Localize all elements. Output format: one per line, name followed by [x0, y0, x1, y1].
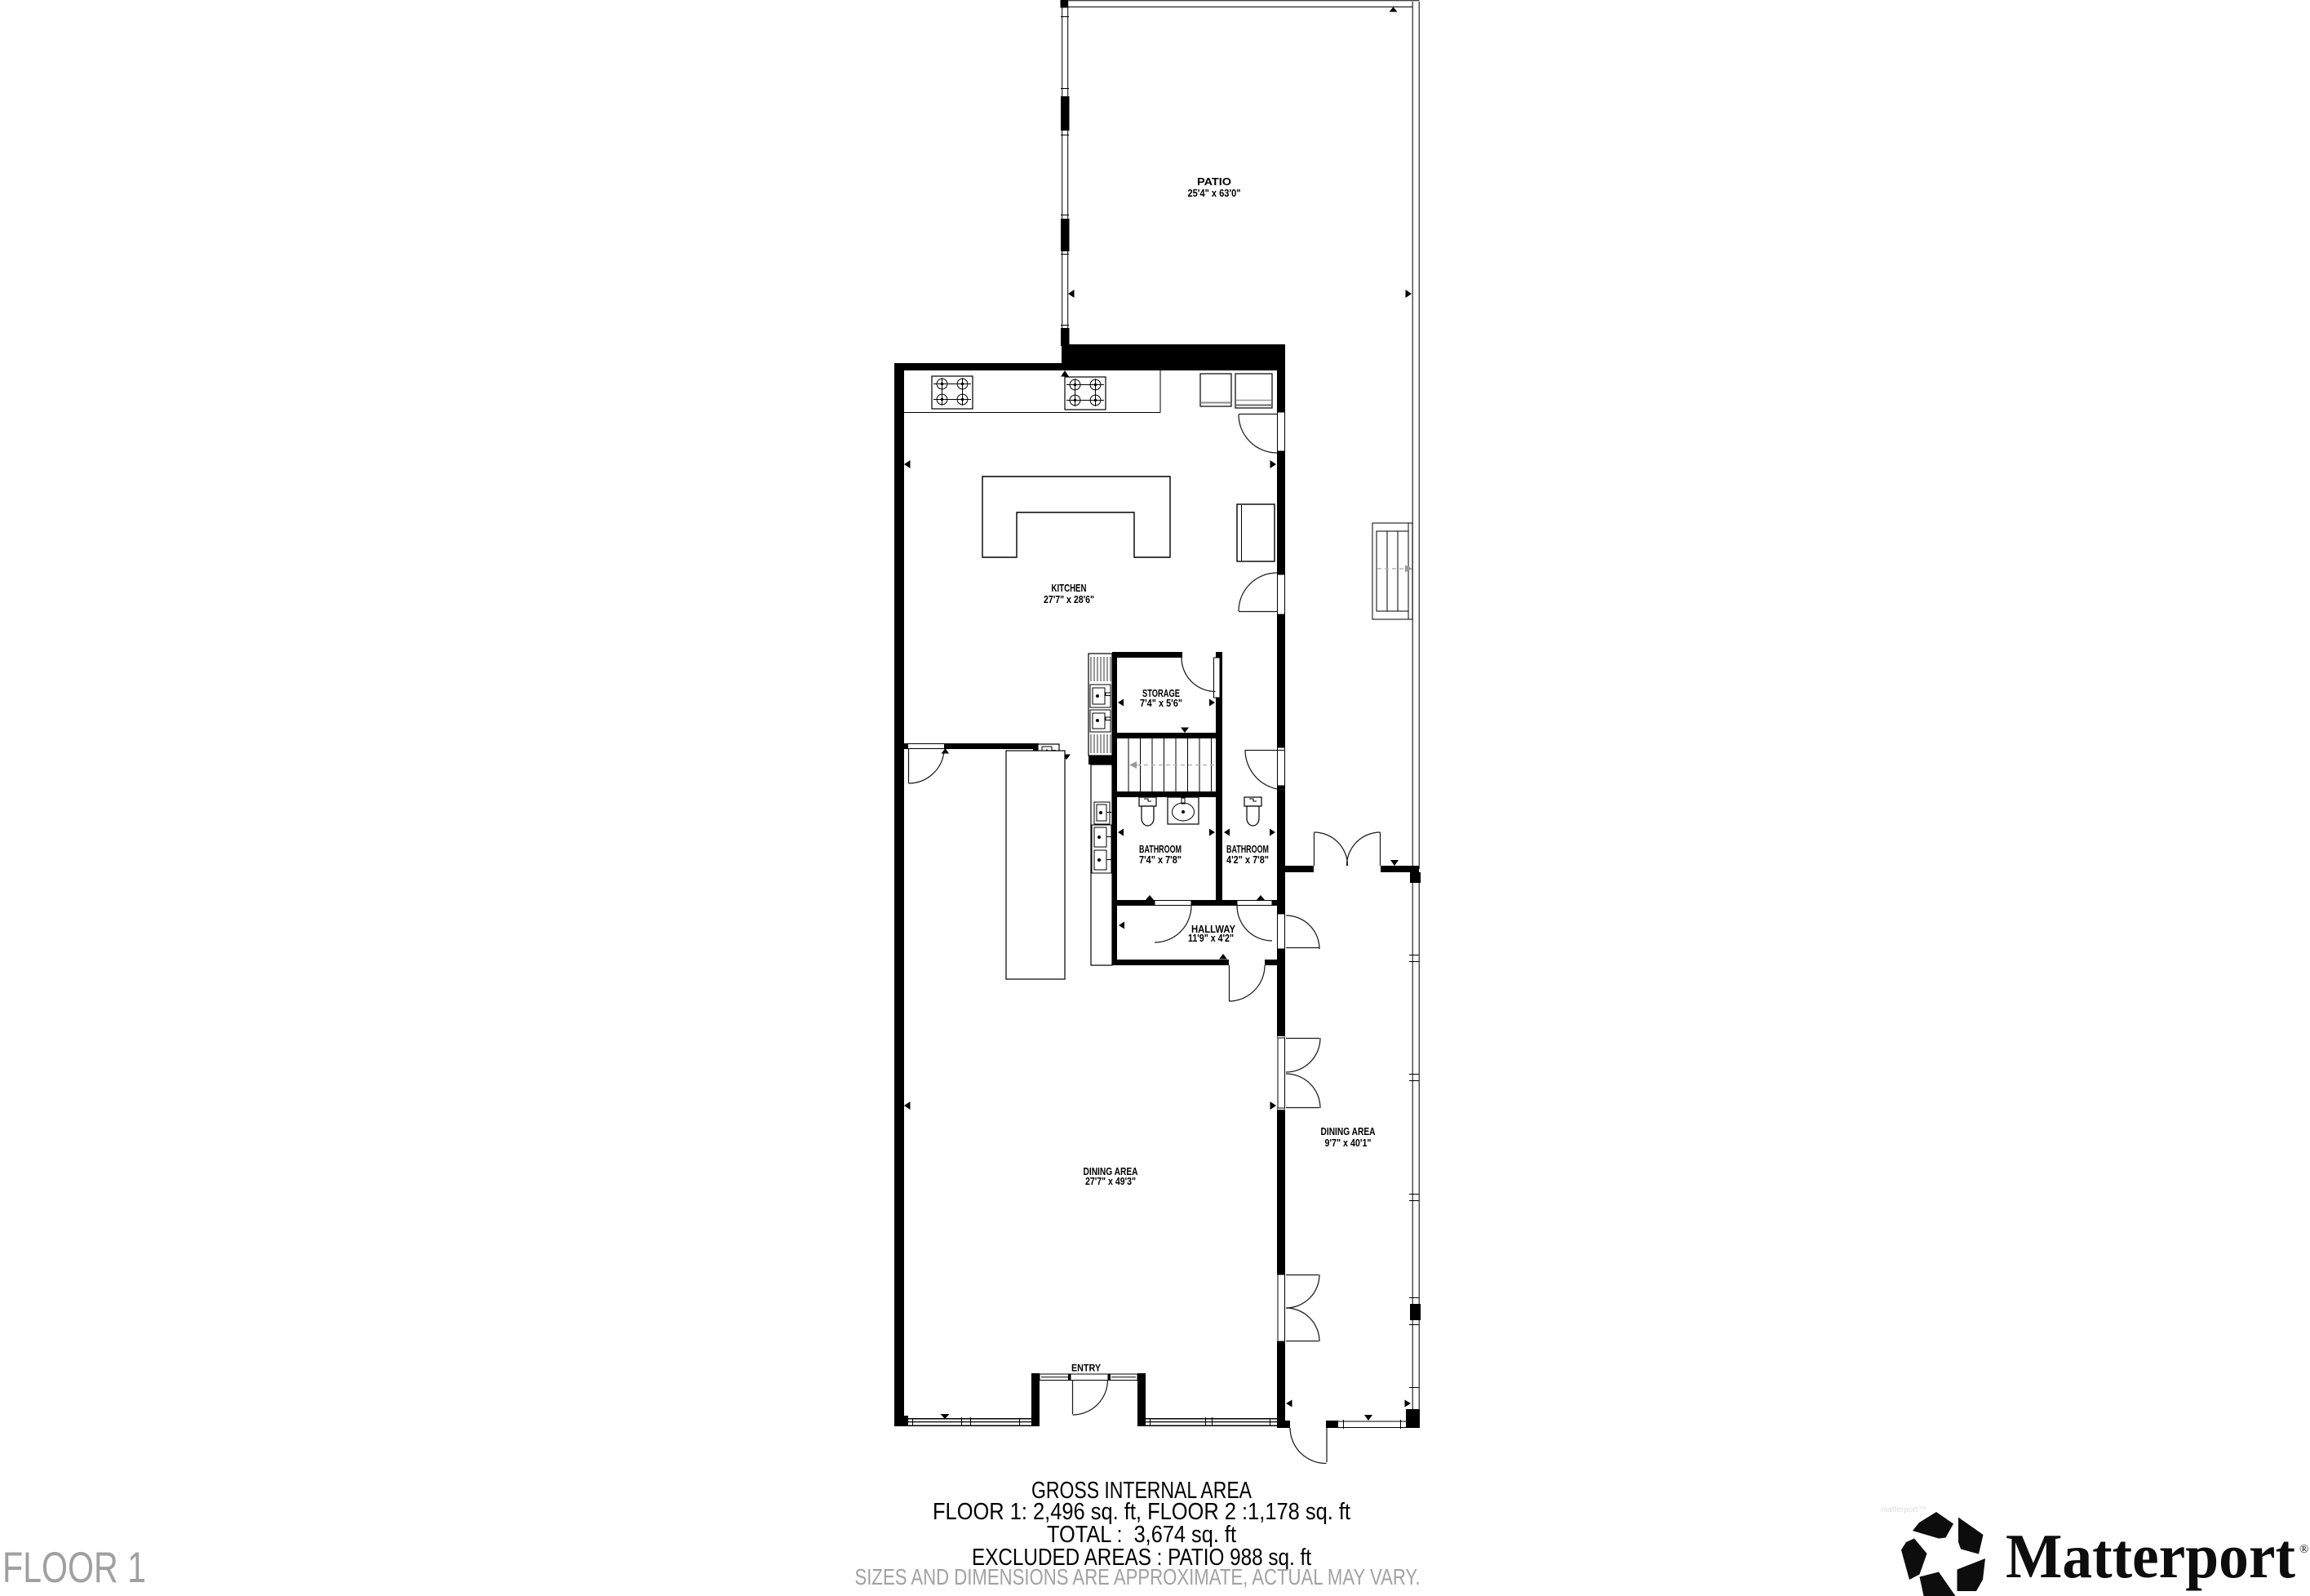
svg-text:4'2" x 7'8": 4'2" x 7'8"	[1226, 854, 1269, 866]
svg-text:FLOOR 1: FLOOR 1	[2, 1544, 146, 1592]
svg-text:27'7" x 28'6": 27'7" x 28'6"	[1044, 594, 1094, 605]
svg-text:KITCHEN: KITCHEN	[1052, 582, 1087, 594]
svg-text:DINING AREA: DINING AREA	[1321, 1125, 1376, 1137]
svg-text:25'4" x 63'0": 25'4" x 63'0"	[1188, 188, 1241, 199]
svg-text:BATHROOM: BATHROOM	[1139, 843, 1182, 855]
svg-text:7'4" x 7'8": 7'4" x 7'8"	[1139, 854, 1182, 866]
svg-text:9'7" x 40'1": 9'7" x 40'1"	[1325, 1137, 1372, 1149]
svg-text:matterport™: matterport™	[1881, 1505, 1926, 1514]
svg-text:SIZES AND DIMENSIONS ARE APPRO: SIZES AND DIMENSIONS ARE APPROXIMATE, AC…	[855, 1564, 1421, 1589]
svg-text:Matterport: Matterport	[2006, 1521, 2295, 1591]
svg-text:7'4" x 5'6": 7'4" x 5'6"	[1140, 698, 1182, 709]
svg-text:BATHROOM: BATHROOM	[1226, 843, 1269, 855]
svg-text:ENTRY: ENTRY	[1071, 1364, 1101, 1374]
svg-text:27'7" x 49'3": 27'7" x 49'3"	[1085, 1176, 1136, 1187]
svg-text:®: ®	[2299, 1543, 2308, 1556]
svg-text:PATIO: PATIO	[1197, 175, 1231, 188]
svg-text:11'9" x 4'2": 11'9" x 4'2"	[1188, 933, 1234, 944]
